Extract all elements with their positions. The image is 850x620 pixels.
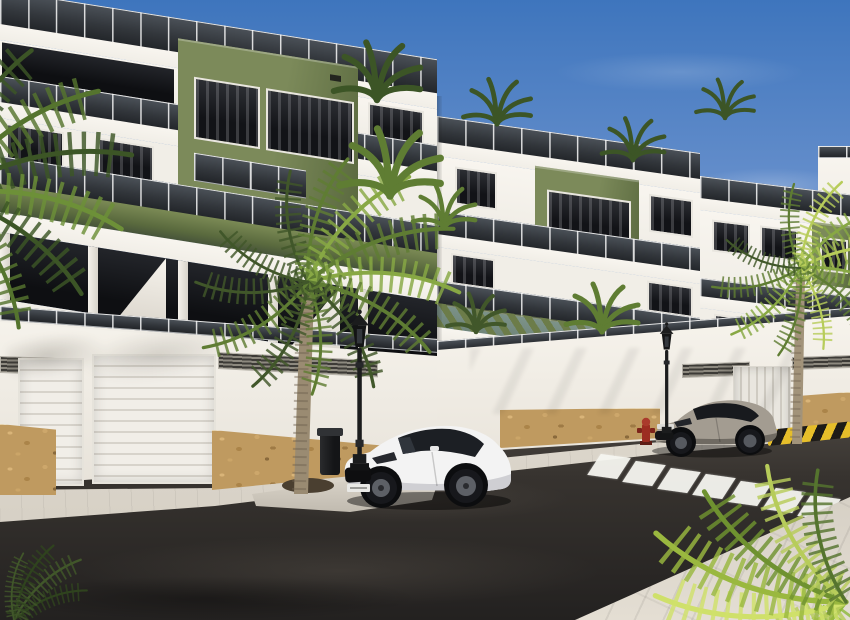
foliage-bottom-right <box>600 448 850 620</box>
lamp-collar <box>664 361 670 365</box>
hydrant-cap <box>642 418 650 426</box>
palm-tree-right <box>706 182 850 452</box>
stone-base <box>0 424 56 495</box>
palm-crown <box>651 461 850 620</box>
rooftop-plant <box>601 98 665 162</box>
lamp-glass <box>665 337 669 347</box>
window <box>649 194 693 238</box>
lamp-base <box>350 463 369 470</box>
rooftop-plant <box>465 62 529 126</box>
palm-crown <box>711 179 850 357</box>
lamp-base <box>660 433 674 438</box>
lamp-cap <box>350 314 369 326</box>
lamp-glass <box>357 329 362 343</box>
fire-hydrant <box>636 416 656 446</box>
cloud <box>555 52 805 92</box>
lamp-finial <box>665 323 668 326</box>
balcony-plant <box>693 56 757 120</box>
lamp-collar <box>356 362 364 367</box>
architectural-render-scene <box>0 0 850 620</box>
foliage-top-left <box>0 55 200 355</box>
lamp-collar <box>356 440 364 447</box>
rooftop-plant <box>345 38 409 102</box>
terrace-plant <box>570 270 634 334</box>
lamp-finial <box>357 310 362 315</box>
balcony-plant <box>412 166 476 230</box>
terrace-plant <box>444 270 508 334</box>
hydrant-nozzle <box>637 428 642 433</box>
palm-crown <box>0 44 134 332</box>
hydrant-body <box>642 424 650 442</box>
lamp-base <box>662 427 672 434</box>
lamp-base <box>353 454 367 463</box>
lamp-cap <box>660 325 674 333</box>
street-lamp <box>342 306 378 478</box>
foliage-bottom-left <box>8 556 138 620</box>
roof-railing <box>818 146 850 158</box>
street-lamp <box>654 320 680 444</box>
